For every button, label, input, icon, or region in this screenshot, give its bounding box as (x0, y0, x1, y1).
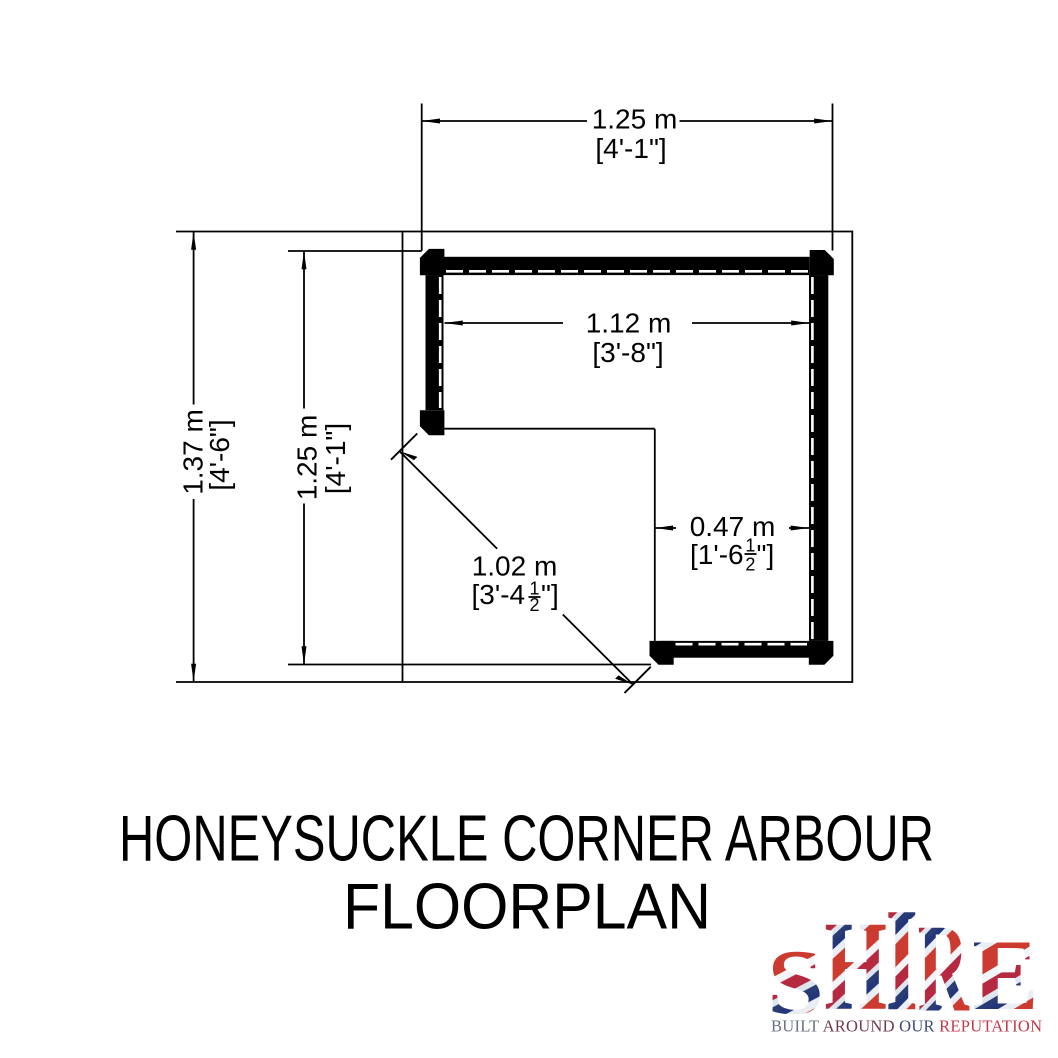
svg-text:"]: "] (757, 539, 775, 570)
svg-text:E: E (972, 918, 1038, 1031)
svg-text:FLOORPLAN: FLOORPLAN (343, 870, 711, 943)
svg-text:[3'-8"]: [3'-8"] (592, 337, 663, 368)
svg-text:[1'-6: [1'-6 (690, 539, 744, 570)
svg-text:0.47 m: 0.47 m (690, 511, 776, 542)
svg-text:1.25 m: 1.25 m (292, 415, 323, 501)
svg-text:1: 1 (745, 536, 755, 556)
svg-text:1.02 m: 1.02 m (472, 551, 558, 582)
svg-text:2: 2 (745, 555, 755, 575)
svg-text:1.25 m: 1.25 m (592, 104, 678, 135)
svg-text:[3'-4: [3'-4 (472, 579, 526, 610)
svg-text:1.12 m: 1.12 m (586, 308, 672, 339)
svg-text:[4'-6"]: [4'-6"] (204, 419, 235, 490)
svg-text:[4'-1"]: [4'-1"] (320, 423, 351, 494)
svg-text:2: 2 (529, 595, 539, 615)
svg-text:"]: "] (541, 579, 559, 610)
svg-text:[4'-1"]: [4'-1"] (595, 133, 666, 164)
svg-text:HONEYSUCKLE CORNER ARBOUR: HONEYSUCKLE CORNER ARBOUR (119, 802, 934, 875)
svg-text:BUILT AROUND OUR REPUTATION: BUILT AROUND OUR REPUTATION (771, 1017, 1042, 1036)
